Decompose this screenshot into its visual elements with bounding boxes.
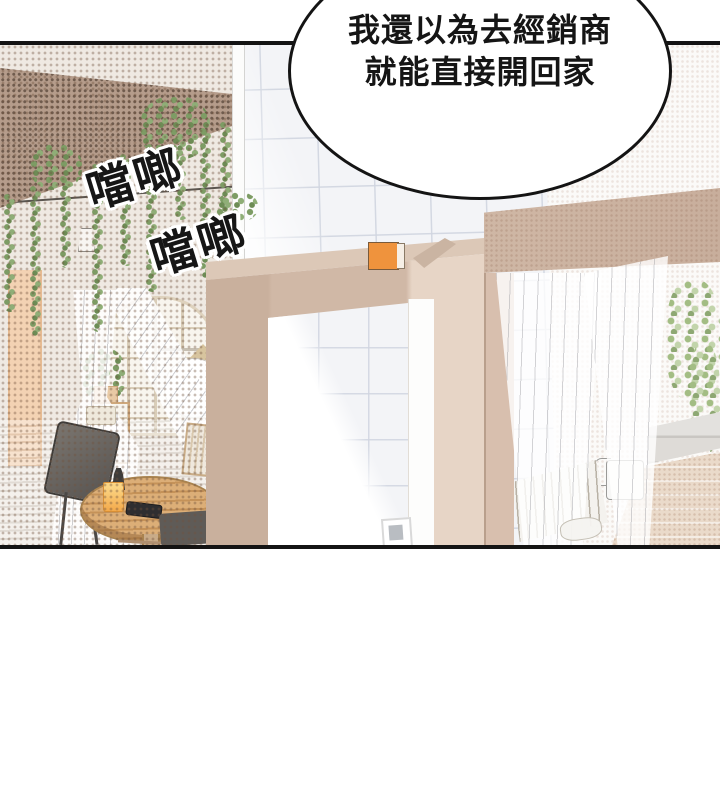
orange-book-side bbox=[397, 243, 405, 269]
curtain-tieback bbox=[86, 406, 116, 425]
patio-view bbox=[0, 44, 232, 545]
speech-line-1: 我還以為去經銷商 bbox=[291, 9, 669, 51]
vine bbox=[30, 186, 43, 336]
vine-cluster bbox=[30, 144, 82, 190]
vine bbox=[4, 194, 17, 312]
orange-book bbox=[368, 242, 399, 270]
door-inner-wall bbox=[408, 299, 434, 545]
juice-glass bbox=[103, 482, 124, 512]
vine bbox=[60, 176, 73, 268]
dark-chair-seat bbox=[159, 510, 213, 545]
speech-line-2: 就能直接開回家 bbox=[291, 51, 669, 93]
picture-frame-inner bbox=[388, 525, 403, 541]
speech-bubble-text: 我還以為去經銷商 就能直接開回家 bbox=[291, 9, 669, 93]
panel-border-bottom bbox=[0, 545, 720, 549]
comic-page: 噹啷 噹啷 我還以為去經銷商 就能直接開回家 bbox=[0, 0, 720, 789]
open-door-glass bbox=[268, 301, 408, 545]
picture-frame bbox=[381, 517, 413, 545]
